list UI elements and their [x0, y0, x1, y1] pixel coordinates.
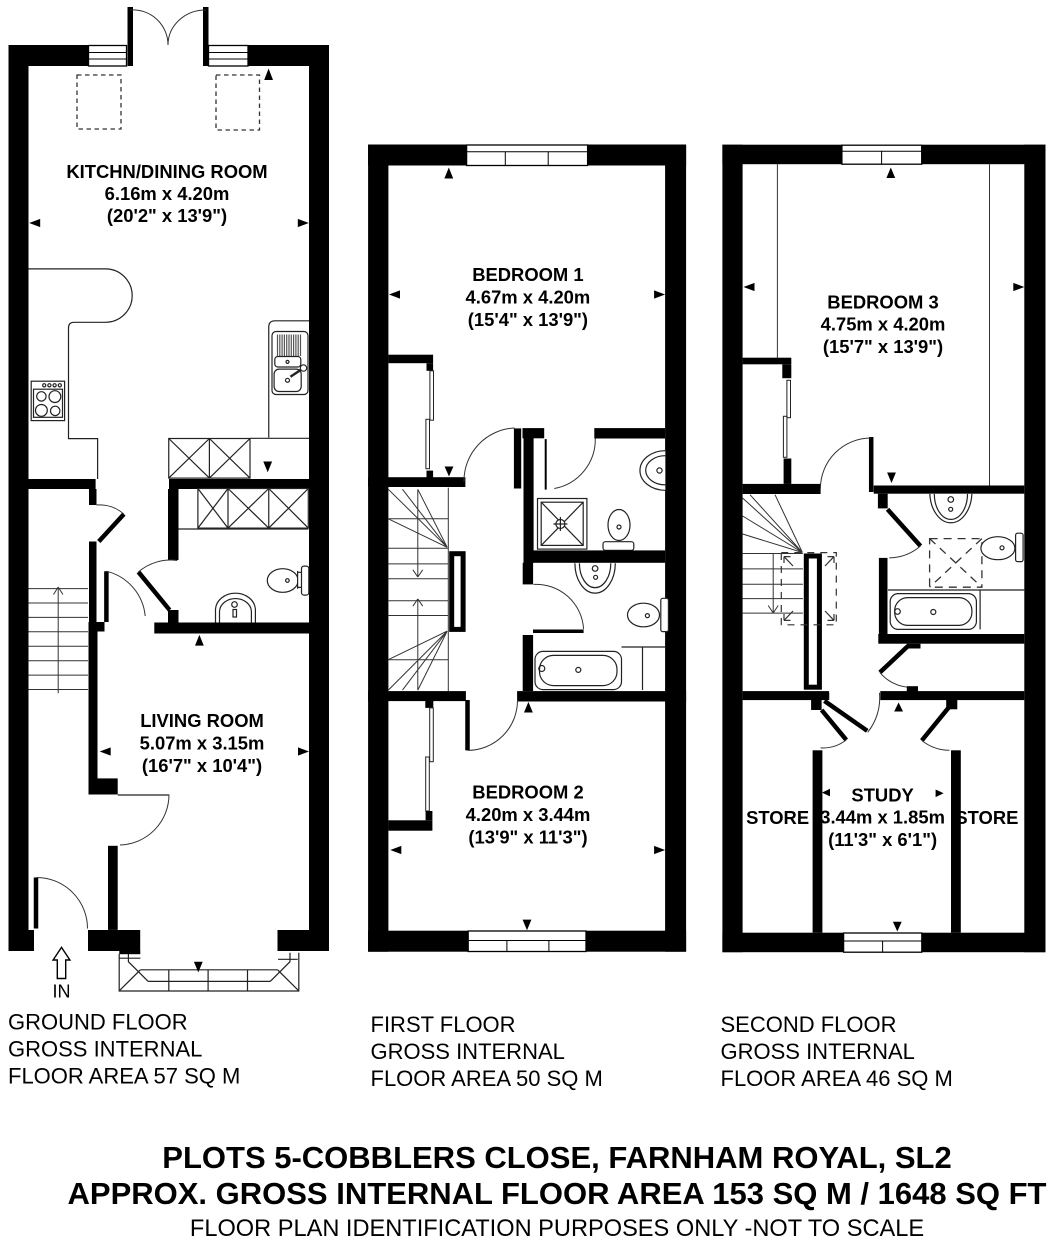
svg-text:(20'2" x 13'9"): (20'2" x 13'9")	[107, 205, 227, 226]
svg-text:GROSS INTERNAL: GROSS INTERNAL	[8, 1037, 202, 1062]
svg-text:3.44m x 1.85m: 3.44m x 1.85m	[820, 807, 945, 828]
svg-text:GROSS INTERNAL: GROSS INTERNAL	[721, 1039, 915, 1064]
svg-text:PLOTS 5-COBBLERS CLOSE, FARNHA: PLOTS 5-COBBLERS CLOSE, FARNHAM ROYAL, S…	[162, 1140, 951, 1175]
svg-text:STUDY: STUDY	[851, 785, 913, 806]
svg-text:FLOOR AREA 57 SQ M: FLOOR AREA 57 SQ M	[8, 1064, 240, 1089]
svg-text:FLOOR AREA 46 SQ M: FLOOR AREA 46 SQ M	[721, 1066, 953, 1091]
svg-text:STORE: STORE	[746, 807, 809, 828]
svg-text:5.07m x 3.15m: 5.07m x 3.15m	[140, 733, 265, 754]
svg-text:(16'7" x 10'4"): (16'7" x 10'4")	[142, 755, 262, 776]
svg-text:BEDROOM 3: BEDROOM 3	[827, 292, 938, 313]
svg-text:(13'9" x 11'3"): (13'9" x 11'3")	[468, 827, 587, 848]
svg-text:APPROX. GROSS INTERNAL FLOOR A: APPROX. GROSS INTERNAL FLOOR AREA 153 SQ…	[68, 1176, 1047, 1211]
svg-text:BEDROOM 1: BEDROOM 1	[472, 264, 583, 285]
svg-text:FLOOR PLAN IDENTIFICATION PURP: FLOOR PLAN IDENTIFICATION PURPOSES ONLY …	[190, 1216, 924, 1242]
svg-text:4.20m x 3.44m: 4.20m x 3.44m	[466, 804, 591, 825]
svg-text:GROUND FLOOR: GROUND FLOOR	[8, 1010, 188, 1035]
svg-text:FIRST FLOOR: FIRST FLOOR	[371, 1012, 516, 1037]
svg-text:4.75m x 4.20m: 4.75m x 4.20m	[821, 314, 946, 335]
svg-text:(15'7" x 13'9"): (15'7" x 13'9")	[823, 336, 943, 357]
svg-text:FLOOR AREA 50 SQ M: FLOOR AREA 50 SQ M	[371, 1066, 603, 1091]
svg-text:4.67m x 4.20m: 4.67m x 4.20m	[466, 287, 591, 308]
svg-text:GROSS INTERNAL: GROSS INTERNAL	[371, 1039, 565, 1064]
svg-text:SECOND FLOOR: SECOND FLOOR	[721, 1012, 897, 1037]
svg-text:STORE: STORE	[955, 807, 1018, 828]
svg-text:(15'4" x 13'9"): (15'4" x 13'9")	[468, 309, 588, 330]
svg-text:LIVING ROOM: LIVING ROOM	[140, 710, 264, 731]
svg-text:KITCHN/DINING ROOM: KITCHN/DINING ROOM	[66, 161, 267, 182]
svg-text:(11'3" x 6'1"): (11'3" x 6'1")	[828, 829, 937, 850]
svg-text:IN: IN	[53, 982, 71, 1002]
svg-text:BEDROOM 2: BEDROOM 2	[472, 782, 583, 803]
svg-text:6.16m x 4.20m: 6.16m x 4.20m	[105, 183, 230, 204]
